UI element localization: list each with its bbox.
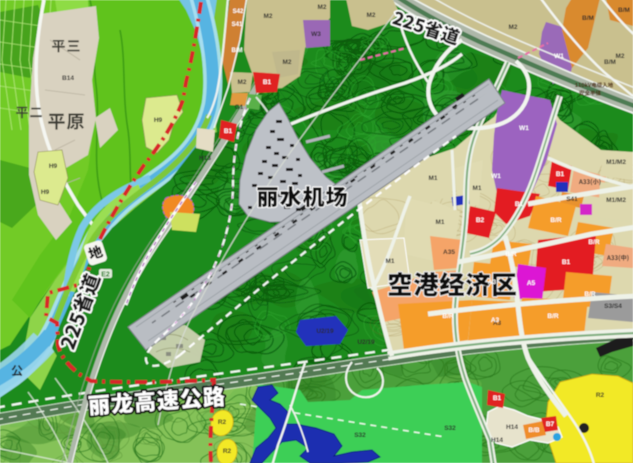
svg-text:W1: W1 (491, 173, 501, 180)
svg-text:W1: W1 (554, 53, 564, 60)
svg-text:A35: A35 (443, 249, 455, 256)
svg-text:B/R: B/R (505, 251, 517, 258)
svg-text:B1: B1 (493, 395, 502, 402)
svg-text:W1: W1 (519, 125, 529, 132)
svg-text:H9: H9 (49, 163, 58, 170)
svg-text:H13: H13 (199, 155, 211, 162)
svg-text:B/R: B/R (588, 239, 600, 246)
svg-text:A3: A3 (491, 317, 500, 324)
svg-text:M2: M2 (317, 4, 326, 11)
svg-text:S42: S42 (233, 9, 244, 15)
svg-text:M2: M2 (615, 53, 624, 60)
svg-text:H14: H14 (491, 437, 503, 444)
svg-text:M1: M1 (435, 219, 444, 226)
svg-text:B/R: B/R (550, 217, 562, 224)
svg-text:B1: B1 (224, 128, 233, 135)
svg-text:R2: R2 (596, 392, 605, 399)
svg-text:M2: M2 (366, 12, 375, 19)
svg-text:M2: M2 (263, 13, 272, 20)
svg-text:M2: M2 (508, 24, 517, 31)
svg-text:A3: A3 (488, 279, 497, 286)
svg-text:B1: B1 (515, 201, 524, 208)
svg-text:S32: S32 (354, 432, 366, 439)
svg-text:B2: B2 (476, 217, 485, 224)
svg-text:R2: R2 (223, 448, 232, 455)
svg-text:G1: G1 (235, 104, 244, 111)
svg-text:B/R: B/R (584, 291, 596, 298)
svg-text:H14: H14 (506, 424, 518, 431)
svg-text:B/R: B/R (442, 313, 454, 320)
svg-text:S32: S32 (444, 425, 456, 432)
svg-text:B14: B14 (62, 75, 74, 82)
svg-text:M1: M1 (472, 185, 481, 192)
svg-text:U2/19: U2/19 (357, 339, 375, 346)
svg-text:S41: S41 (232, 22, 243, 28)
svg-text:B/M: B/M (232, 48, 243, 54)
svg-text:M1: M1 (428, 175, 437, 182)
svg-text:B/M: B/M (604, 59, 616, 66)
svg-text:B/R: B/R (547, 313, 559, 320)
svg-text:W3: W3 (311, 31, 321, 38)
svg-text:M2: M2 (237, 79, 246, 86)
svg-text:S3/S4: S3/S4 (604, 303, 622, 310)
svg-text:M1/M2: M1/M2 (606, 197, 626, 204)
svg-text:B1: B1 (562, 259, 571, 266)
svg-text:H9: H9 (41, 189, 50, 196)
svg-text:B/B: B/B (528, 427, 540, 434)
svg-text:B1: B1 (556, 171, 565, 178)
svg-text:B1: B1 (263, 79, 272, 86)
svg-text:B/M: B/M (582, 15, 594, 22)
svg-text:S41: S41 (566, 196, 578, 203)
svg-text:M1/M2: M1/M2 (606, 159, 626, 166)
svg-text:B7: B7 (546, 421, 555, 428)
svg-text:A5: A5 (527, 280, 536, 287)
svg-text:M2: M2 (282, 59, 291, 66)
svg-text:E2: E2 (101, 272, 110, 279)
svg-text:R2: R2 (218, 419, 227, 426)
svg-text:U2/19: U2/19 (316, 328, 334, 335)
svg-text:M1: M1 (385, 258, 394, 265)
svg-text:H9: H9 (154, 117, 163, 124)
svg-text:B/M: B/M (618, 7, 630, 14)
